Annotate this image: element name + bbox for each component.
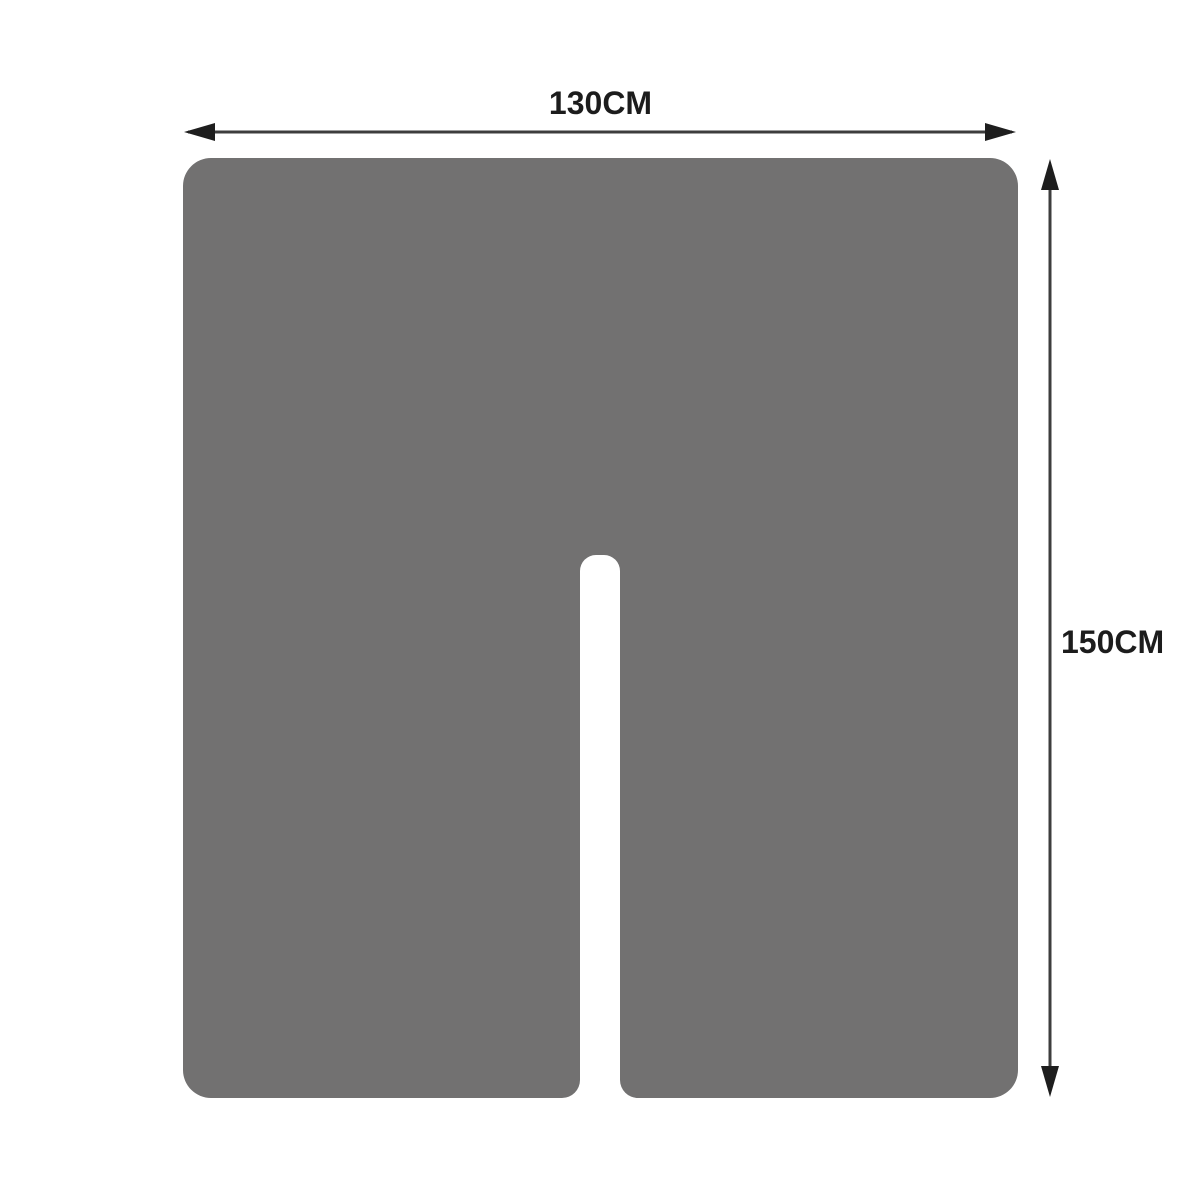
diagram-canvas: [0, 0, 1200, 1200]
width-dimension-arrow: [184, 123, 1016, 141]
width-dimension-label: 130CM: [183, 87, 1018, 119]
height-dimension-label: 150CM: [1061, 626, 1164, 658]
height-arrow-bottom-head: [1041, 1066, 1059, 1097]
width-arrow-left-head: [184, 123, 215, 141]
width-arrow-right-head: [985, 123, 1016, 141]
dimension-diagram: 130CM 150CM: [0, 0, 1200, 1200]
height-dimension-arrow: [1041, 159, 1059, 1097]
panel-shape: [183, 158, 1018, 1098]
height-arrow-top-head: [1041, 159, 1059, 190]
